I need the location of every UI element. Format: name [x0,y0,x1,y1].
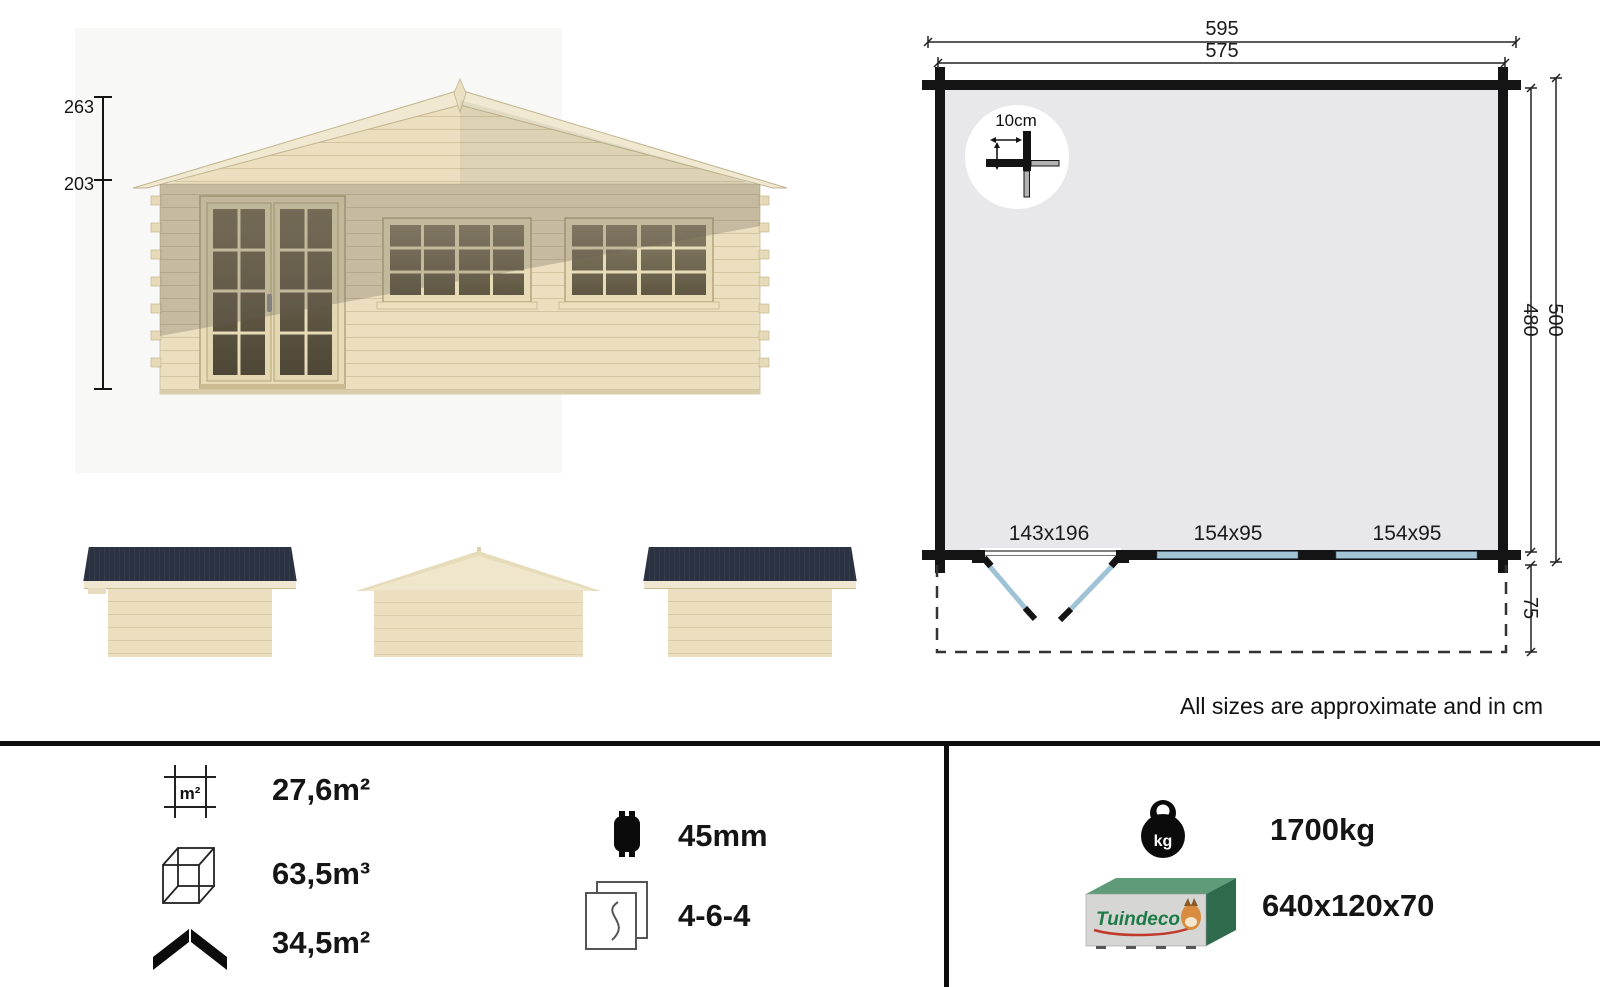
wall-thickness-value: 45mm [678,818,768,854]
window-right-size-label: 154x95 [1373,522,1442,545]
side-wall [668,589,832,657]
height-dimension-line [102,96,104,390]
gable-shadow [460,100,756,184]
sizes-note: All sizes are approximate and in cm [1180,693,1543,720]
package-brand: Tuindeco [1096,909,1180,930]
svg-text:kg: kg [1154,833,1173,850]
eave-height-label: 203 [56,174,94,195]
width-inner-label: 575 [1205,40,1238,62]
width-outer-label: 595 [1205,18,1238,40]
height-tick-ground [94,388,112,390]
plan-window-left [1157,552,1298,559]
weight-value: 1700kg [1270,812,1375,848]
height-tick-eave [94,179,112,181]
package-size-value: 640x120x70 [1262,888,1434,924]
corner-detail-label: 10cm [995,111,1037,130]
window-left-size-label: 154x95 [1194,522,1263,545]
floor-plan: 143x196 154x95 154x95 10cm [880,0,1600,700]
plan-door [972,548,1129,620]
glazing-icon [582,878,652,954]
foundation-shadow [160,390,760,394]
volume-value: 63,5m³ [272,856,370,892]
package-feet [1096,946,1196,949]
side-view-left [80,547,300,657]
glazing-value: 4-6-4 [678,898,750,934]
wall-corner-detail: 10cm [965,105,1069,209]
floor-area-icon: m² [162,762,218,820]
vertical-divider [944,741,949,987]
height-tick-ridge [94,96,112,98]
side-wall [108,589,272,657]
ridge-height-label: 263 [56,97,94,118]
rear-roof-inner [363,556,594,591]
floor-area-value: 27,6m² [272,772,370,808]
terrace-depth-label: 75 [1519,597,1541,619]
depth-inner-label: 480 [1519,303,1541,336]
rear-view [356,551,601,657]
roof-area-value: 34,5m² [272,925,370,961]
package-icon: Tuindeco [1078,872,1248,952]
door-size-label: 143x196 [1009,522,1090,545]
spec-sheet: 263 203 [0,0,1600,987]
side-fascia [84,581,296,589]
wall-log-icon [612,808,642,860]
depth-outer-label: 500 [1544,303,1566,336]
side-view-right [640,547,860,657]
side-gutter [88,588,106,594]
door-threshold [200,384,345,389]
side-roof-dark [640,547,860,581]
volume-icon [158,843,220,909]
side-roof-dark [80,547,300,581]
rear-wall [374,590,583,657]
plan-window-right [1336,552,1477,559]
roof-area-icon [150,922,230,972]
svg-text:m²: m² [180,784,201,803]
horizontal-divider [0,741,1600,746]
weight-icon: kg [1133,796,1193,860]
cabin-front-view [130,78,790,398]
side-fascia [644,581,856,589]
